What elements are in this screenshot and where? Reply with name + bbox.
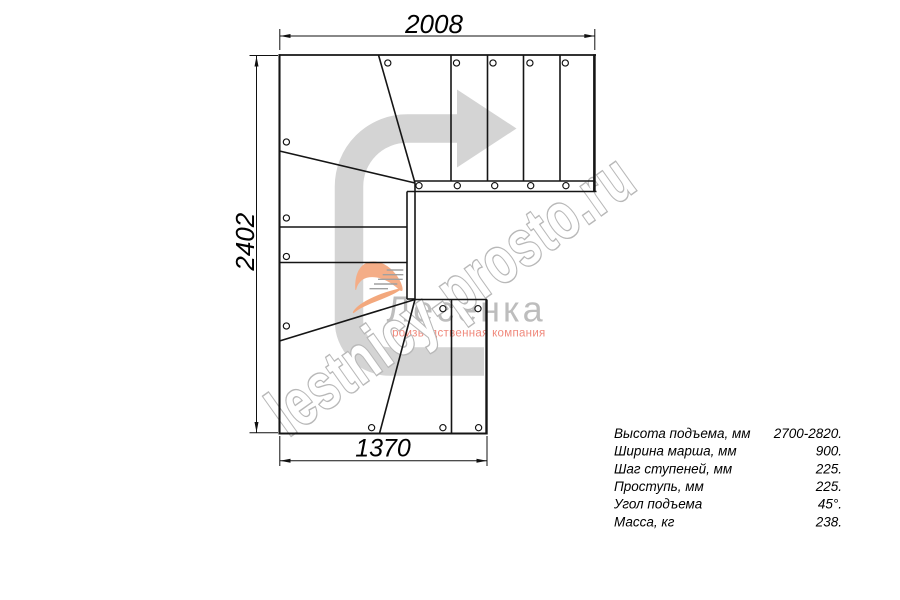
svg-text:238.: 238.	[815, 514, 842, 529]
svg-text:Проступь, мм: Проступь, мм	[614, 479, 704, 494]
svg-text:2402: 2402	[230, 212, 260, 271]
svg-text:225.: 225.	[815, 461, 842, 476]
svg-text:45°.: 45°.	[818, 497, 842, 512]
svg-text:Угол подъема: Угол подъема	[613, 497, 703, 512]
svg-text:2700-2820.: 2700-2820.	[773, 426, 842, 441]
svg-text:Шаг ступеней, мм: Шаг ступеней, мм	[614, 461, 732, 476]
svg-text:225.: 225.	[815, 479, 842, 494]
svg-text:1370: 1370	[355, 435, 411, 463]
svg-text:Масса, кг: Масса, кг	[614, 514, 675, 529]
svg-text:2008: 2008	[404, 9, 463, 39]
svg-text:Высота подъема, мм: Высота подъема, мм	[614, 426, 750, 441]
svg-text:Ширина марша, мм: Ширина марша, мм	[614, 444, 737, 459]
svg-text:900.: 900.	[816, 444, 842, 459]
